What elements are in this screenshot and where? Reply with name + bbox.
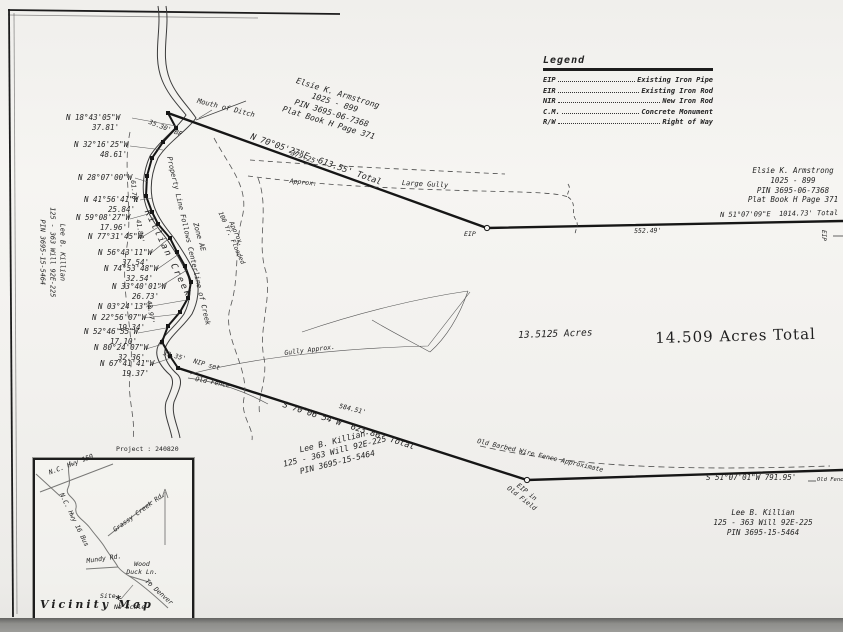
legend-item-cm: C.M.Concrete Monument xyxy=(543,108,713,116)
creek-call-distance: 19.37' xyxy=(122,370,149,378)
legend-item-eir: EIRExisting Iron Rod xyxy=(543,87,713,95)
creek-call-bearing: N 52°46'55"W xyxy=(84,328,138,336)
owner-armstrong-right: Elsie K. Armstrong 1025 - 899 PIN 3695-0… xyxy=(732,166,843,205)
owner-pin: PIN 3695-15-5464 xyxy=(693,528,833,538)
legend-desc: Existing Iron Pipe xyxy=(637,76,713,84)
creek-call-bearing: N 18°43'05"W xyxy=(66,114,120,122)
legend-item-rw: R/WRight of Way xyxy=(543,118,713,126)
eip-marker-north xyxy=(484,225,489,230)
note-old-fence-right: Old Fence xyxy=(817,477,843,483)
legend-abbr: EIR xyxy=(543,87,556,95)
legend-title: Legend xyxy=(543,55,713,66)
creek-call-distance: 17.96' xyxy=(100,224,127,232)
gully-dashed-upper xyxy=(250,160,505,174)
vicinity-label-wood-line2: Duck Ln. xyxy=(122,569,162,577)
creek-call-bearing: N 32°16'25"W xyxy=(74,141,128,149)
legend-rule xyxy=(543,68,713,71)
vicinity-label-wood-duck: Wood Duck Ln. xyxy=(122,561,162,577)
note-creek-seg1: 61.70' xyxy=(129,180,138,204)
legend-abbr: NIR xyxy=(543,97,556,105)
legend-item-nir: NIRNew Iron Rod xyxy=(543,97,713,105)
legend-desc: Existing Iron Rod xyxy=(641,87,713,95)
gully-approx-line xyxy=(190,292,470,374)
legend-leader xyxy=(558,81,635,82)
owner-deed: 125 - 363 Will 92E-225 xyxy=(47,204,57,300)
legend-abbr: R/W xyxy=(543,118,556,126)
owner-name: Elsie K. Armstrong xyxy=(732,166,843,176)
edge-tick-lines xyxy=(808,236,843,481)
creek-call-distance: 48.61' xyxy=(100,151,127,159)
legend-leader xyxy=(558,123,661,124)
boundary-label-east-partial: 552.49' xyxy=(634,228,662,236)
owner-name: Lee B. Killian xyxy=(57,204,67,300)
legend-leader xyxy=(558,102,661,103)
border-left-line xyxy=(9,9,13,617)
owner-killian-right: Lee B. Killian 125 - 363 Will 92E-225 PI… xyxy=(693,508,833,537)
creek-call-bearing: N 77°31'45"W xyxy=(88,233,142,241)
flood-line-east xyxy=(214,138,252,440)
creek-call-bearing: N 28°07'00"W xyxy=(78,174,132,182)
flood-line-outer xyxy=(258,178,268,415)
legend-leader xyxy=(558,92,640,93)
owner-pin: PIN 3695-06-7368 xyxy=(732,186,843,196)
border-left-inner-line xyxy=(14,13,17,614)
creek-call-bearing: N 03°24'13"E xyxy=(98,303,152,311)
gully-branch-squiggle xyxy=(568,184,578,236)
legend-abbr: EIP xyxy=(543,76,556,84)
creek-call-bearing: N 67°41'41"W xyxy=(100,360,154,368)
project-number-label: Project : 240820 xyxy=(116,446,179,453)
owner-deed: 125 - 363 Will 92E-225 xyxy=(693,518,833,528)
legend-desc: New Iron Rod xyxy=(662,97,713,105)
legend-desc: Concrete Monument xyxy=(641,108,713,116)
creek-call-bearing: N 56°43'11"W xyxy=(98,249,152,257)
creek-call-bearing: N 74°53'48"W xyxy=(104,265,158,273)
owner-deed: 1025 - 899 xyxy=(732,176,843,186)
note-eip-right: EIP xyxy=(819,230,826,241)
scan-shadow-band xyxy=(0,618,843,632)
creek-call-bearing: N 59°08'27"W xyxy=(76,214,130,222)
area-total-label: 14.509 Acres Total xyxy=(655,326,816,347)
creek-call-bearing: N 22°56'07"W xyxy=(92,314,146,322)
legend: Legend EIPExisting Iron Pipe EIRExisting… xyxy=(543,55,713,129)
border-top-line xyxy=(8,10,340,14)
legend-desc: Right of Way xyxy=(662,118,713,126)
legend-leader xyxy=(562,113,639,114)
boundary-label-southeast-bearing: S 51°07'01"W 791.95' xyxy=(706,474,796,482)
owner-pin: PIN 3695-15-5464 xyxy=(37,204,47,300)
owner-plat: Plat Book H Page 371 xyxy=(732,195,843,205)
owner-killian-left: Lee B. Killian 125 - 363 Will 92E-225 PI… xyxy=(37,204,68,300)
plat-sheet: Legend EIPExisting Iron Pipe EIRExisting… xyxy=(0,0,843,632)
legend-item-eip: EIPExisting Iron Pipe xyxy=(543,76,713,84)
creek-call-bearing: N 80°24'07"W xyxy=(94,344,148,352)
vicinity-no-scale-label: No Scale xyxy=(114,604,145,611)
owner-name: Lee B. Killian xyxy=(693,508,833,518)
creek-call-bearing: N 33°40'01"W xyxy=(112,283,166,291)
eip-marker-south xyxy=(524,477,529,482)
legend-abbr: C.M. xyxy=(543,108,560,116)
note-eip-top: EIP xyxy=(464,231,476,238)
border-top-inner-line xyxy=(8,15,258,18)
creek-call-distance: 37.81' xyxy=(92,124,119,132)
